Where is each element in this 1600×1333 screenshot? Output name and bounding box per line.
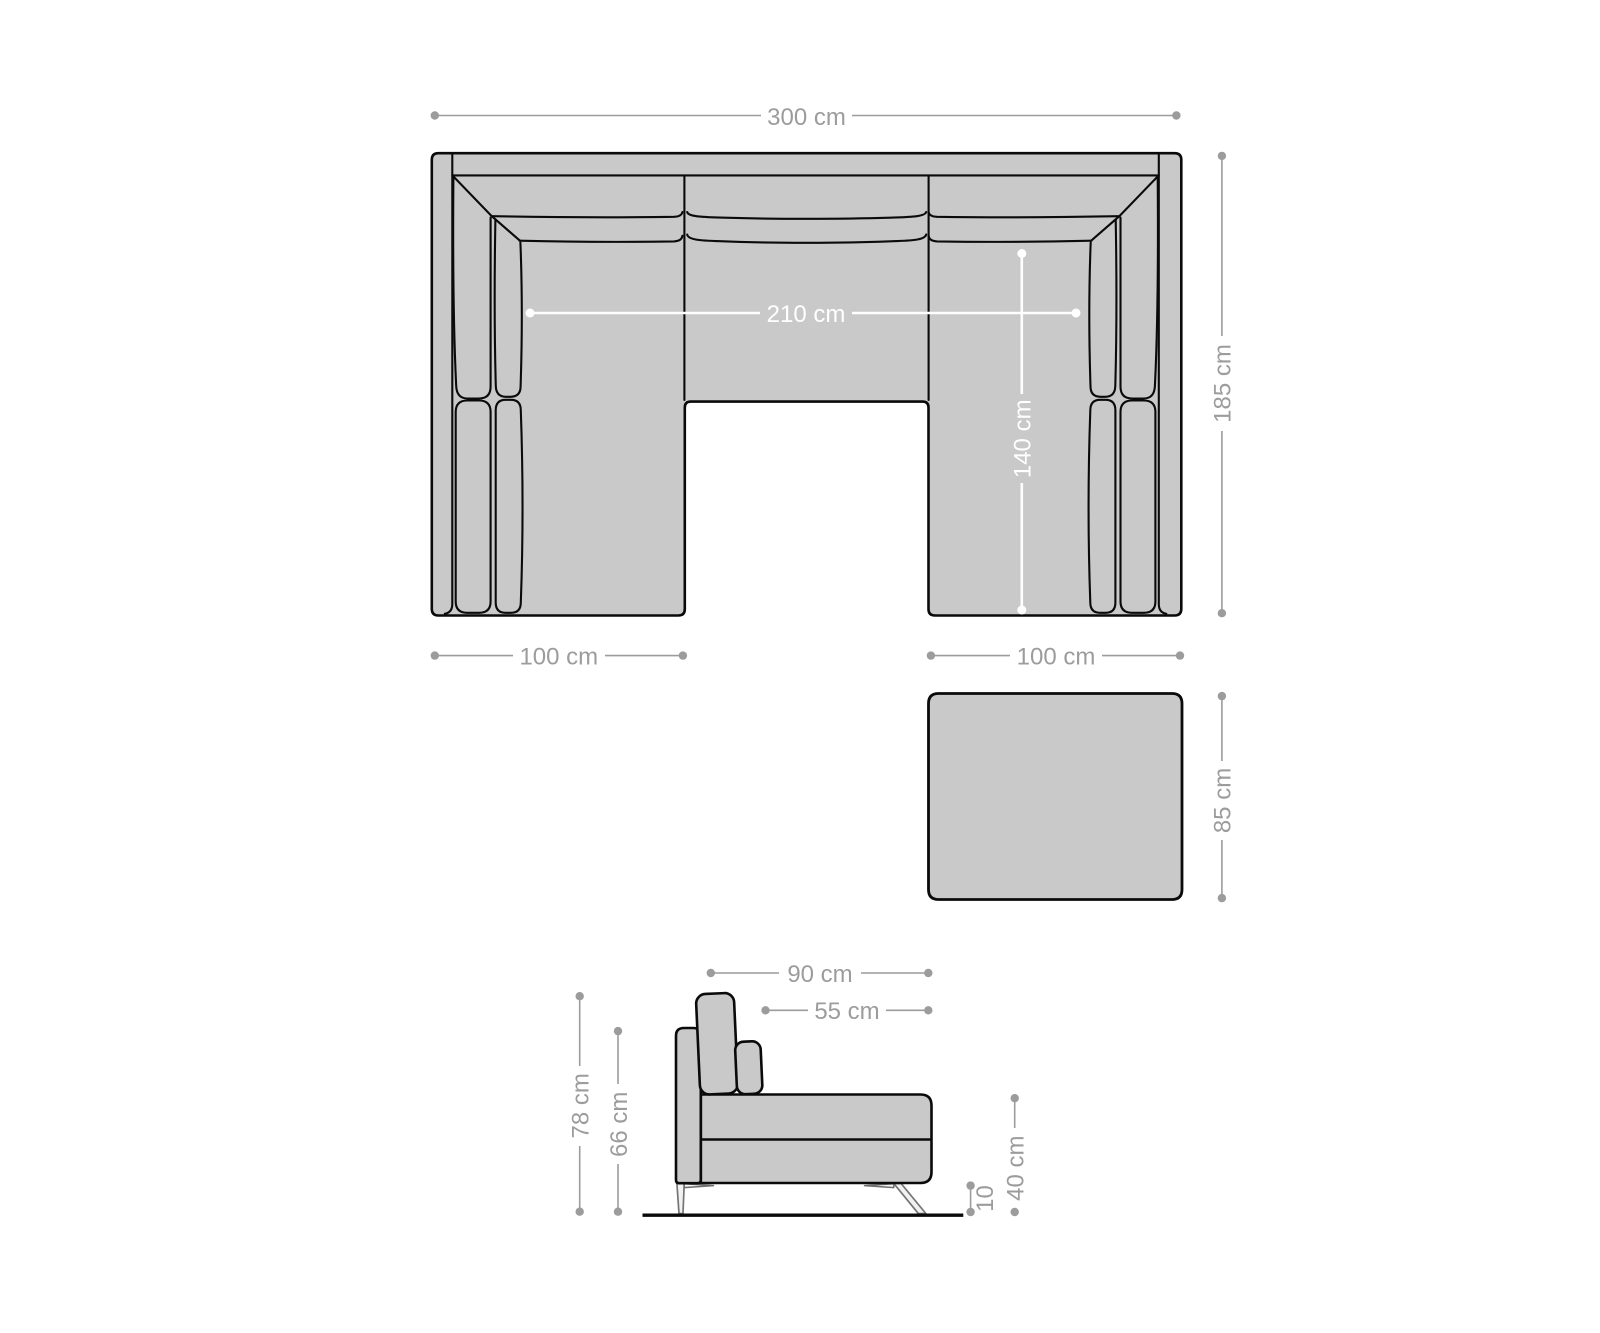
svg-text:140 cm: 140 cm bbox=[1010, 399, 1037, 478]
svg-text:210 cm: 210 cm bbox=[767, 301, 846, 328]
svg-text:55 cm: 55 cm bbox=[814, 998, 879, 1025]
svg-text:100 cm: 100 cm bbox=[519, 643, 598, 670]
svg-text:90 cm: 90 cm bbox=[787, 961, 852, 988]
svg-text:185 cm: 185 cm bbox=[1210, 344, 1237, 423]
svg-text:10: 10 bbox=[972, 1185, 999, 1212]
svg-text:66 cm: 66 cm bbox=[606, 1092, 633, 1157]
svg-text:85 cm: 85 cm bbox=[1210, 768, 1237, 833]
svg-text:40 cm: 40 cm bbox=[1003, 1136, 1030, 1201]
svg-text:78 cm: 78 cm bbox=[568, 1073, 595, 1138]
svg-text:300 cm: 300 cm bbox=[767, 104, 846, 131]
svg-text:100 cm: 100 cm bbox=[1017, 643, 1096, 670]
